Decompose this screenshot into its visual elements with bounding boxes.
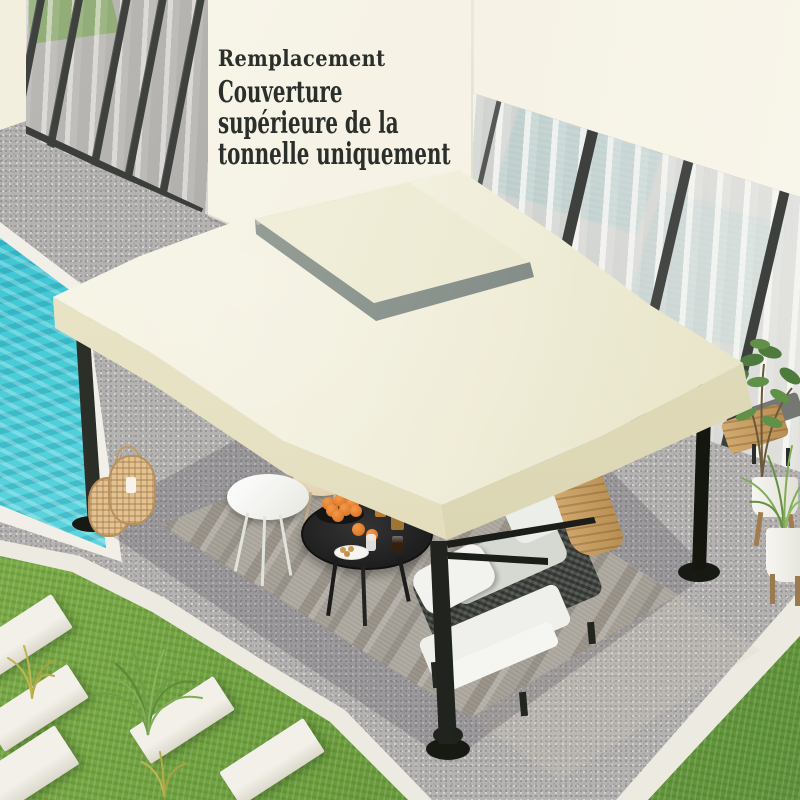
yellow-grass-tuft [138, 748, 190, 798]
rattan-lantern [108, 455, 156, 525]
headline-kicker: Remplacement [218, 48, 528, 70]
orange [350, 505, 362, 517]
pot-stand-leg [795, 576, 800, 606]
product-scene: Remplacement Couverture supérieure de la… [0, 0, 800, 800]
headline-title: Couverture supérieure de la tonnelle uni… [218, 77, 451, 170]
candle [126, 477, 136, 493]
orange [352, 523, 365, 536]
espresso-glass [392, 536, 403, 552]
pot-stand-leg [770, 574, 775, 604]
cookie [344, 551, 350, 557]
headline-block: Remplacement Couverture supérieure de la… [218, 48, 570, 170]
stool-white [227, 474, 309, 520]
orange [332, 510, 344, 522]
ornamental-grass-tuft [88, 638, 208, 738]
yellow-grass-tuft [2, 642, 62, 700]
headline-title-line: Couverture [218, 77, 451, 108]
potted-grass-leaves [726, 440, 800, 540]
headline-title-line: tonnelle uniquement [218, 139, 451, 170]
headline-title-line: supérieure de la [218, 108, 451, 139]
salt-shaker [366, 534, 376, 551]
